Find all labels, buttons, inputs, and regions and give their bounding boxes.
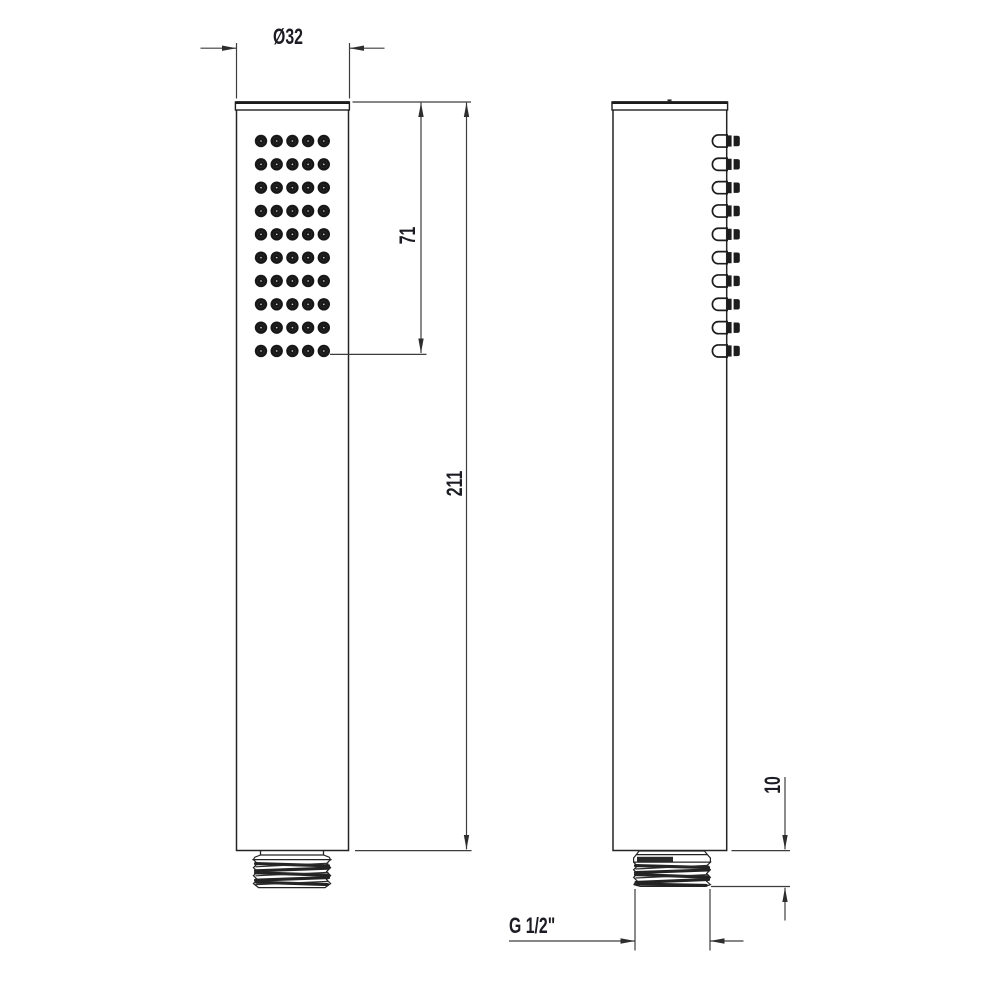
svg-text:71: 71 — [397, 226, 421, 244]
svg-text:G 1/2": G 1/2" — [509, 915, 555, 939]
svg-text:Ø32: Ø32 — [273, 26, 303, 50]
svg-text:10: 10 — [762, 776, 786, 794]
svg-text:211: 211 — [444, 470, 468, 496]
